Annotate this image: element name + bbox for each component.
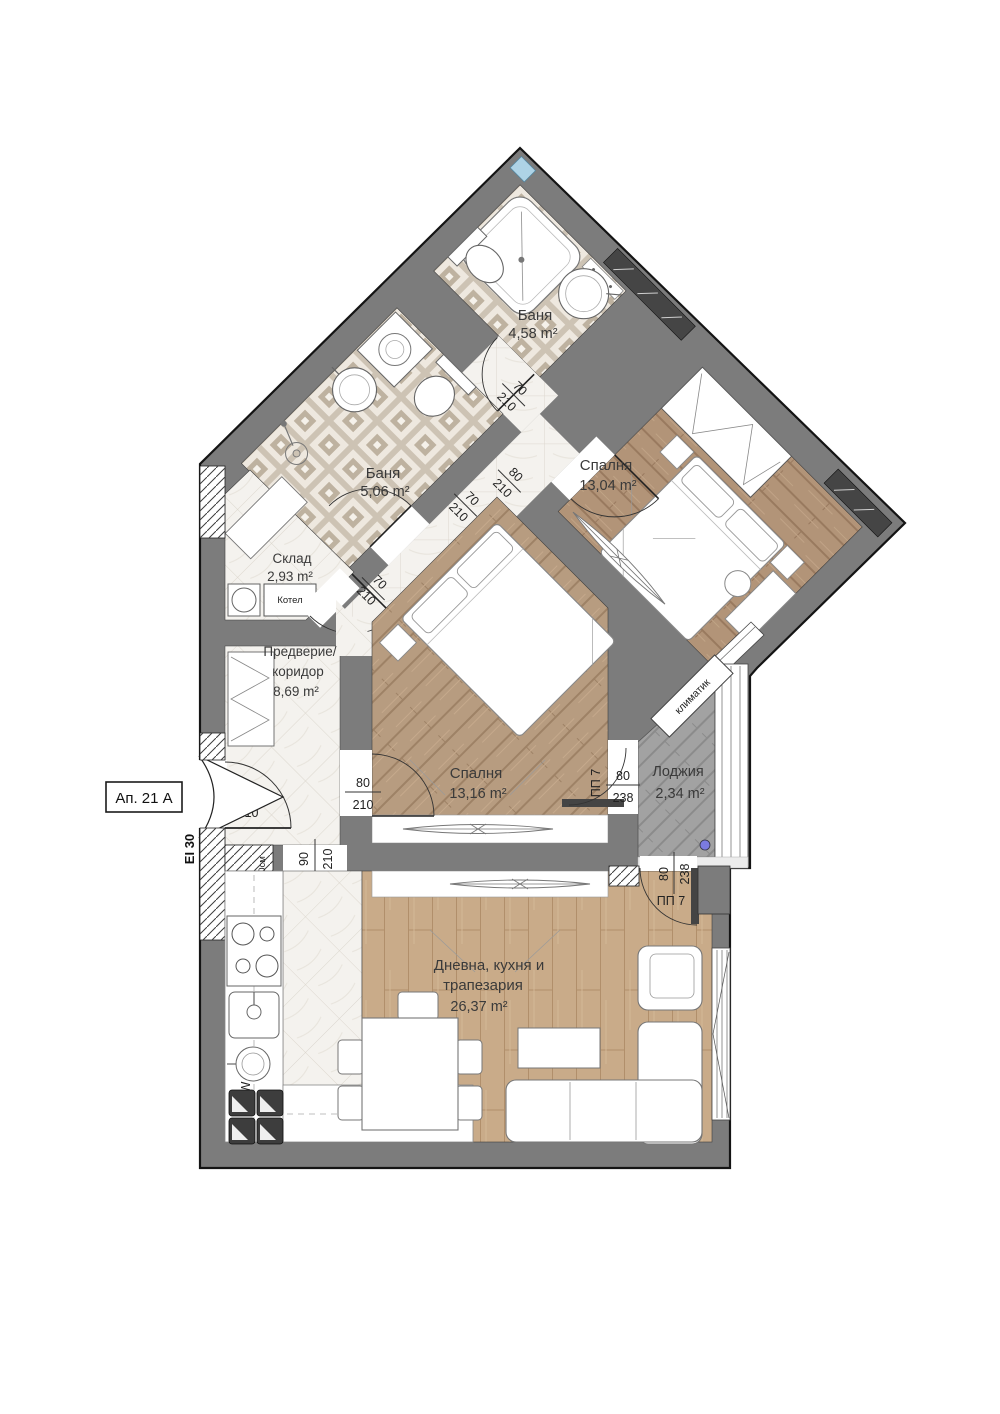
hall-wardrobe (228, 652, 274, 746)
svg-text:коридор: коридор (272, 664, 324, 679)
svg-text:90: 90 (297, 852, 311, 866)
svg-text:EI 30: EI 30 (182, 834, 197, 864)
svg-text:трапезария: трапезария (443, 977, 523, 994)
svg-text:Ап. 21 А: Ап. 21 А (115, 790, 172, 807)
coffee-table (518, 1028, 600, 1068)
svg-text:238: 238 (678, 864, 692, 885)
label-bedroom-right: Спалня (580, 457, 632, 474)
label-loggia: Лоджия (652, 764, 703, 780)
window-living (712, 948, 730, 1120)
svg-text:13,16 m²: 13,16 m² (449, 786, 506, 802)
svg-text:80: 80 (356, 776, 370, 790)
svg-text:238: 238 (613, 791, 634, 805)
label-hall: Предверие/ (263, 644, 336, 659)
svg-text:8,69 m²: 8,69 m² (273, 684, 319, 699)
svg-text:2,34 m²: 2,34 m² (655, 786, 704, 802)
drain-dot (700, 840, 710, 850)
svg-text:5,06 m²: 5,06 m² (360, 484, 409, 500)
svg-text:ПП 7: ПП 7 (657, 894, 685, 908)
svg-text:210: 210 (321, 849, 335, 870)
fire-rating-label: EI 30 (182, 834, 197, 864)
floor-plan-page: 70 210 70 210 80 210 Котел 70 2 (0, 0, 1000, 1414)
radiator-bedroom-center (372, 815, 608, 843)
stove (227, 916, 281, 986)
label-bath-mid: Баня (366, 465, 401, 482)
svg-text:4,58 m²: 4,58 m² (508, 326, 557, 342)
svg-text:26,37 m²: 26,37 m² (450, 999, 507, 1015)
label-bath-top: Баня (518, 307, 553, 324)
svg-text:210: 210 (353, 798, 374, 812)
svg-text:2,93 m²: 2,93 m² (267, 569, 313, 584)
svg-text:80: 80 (657, 867, 671, 881)
storage-basin (228, 584, 260, 616)
floor-plan: 70 210 70 210 80 210 Котел 70 2 (0, 0, 1000, 1414)
label-bedroom-center: Спалня (450, 765, 502, 782)
svg-text:80: 80 (616, 769, 630, 783)
armchair (638, 946, 702, 1010)
svg-text:13,04 m²: 13,04 m² (579, 478, 636, 494)
svg-text:Котел: Котел (277, 595, 302, 606)
label-storage: Склад (272, 551, 311, 566)
label-living: Дневна, кухня и (434, 957, 544, 974)
radiator-living (372, 871, 608, 897)
svg-text:ПП 7: ПП 7 (589, 769, 603, 797)
